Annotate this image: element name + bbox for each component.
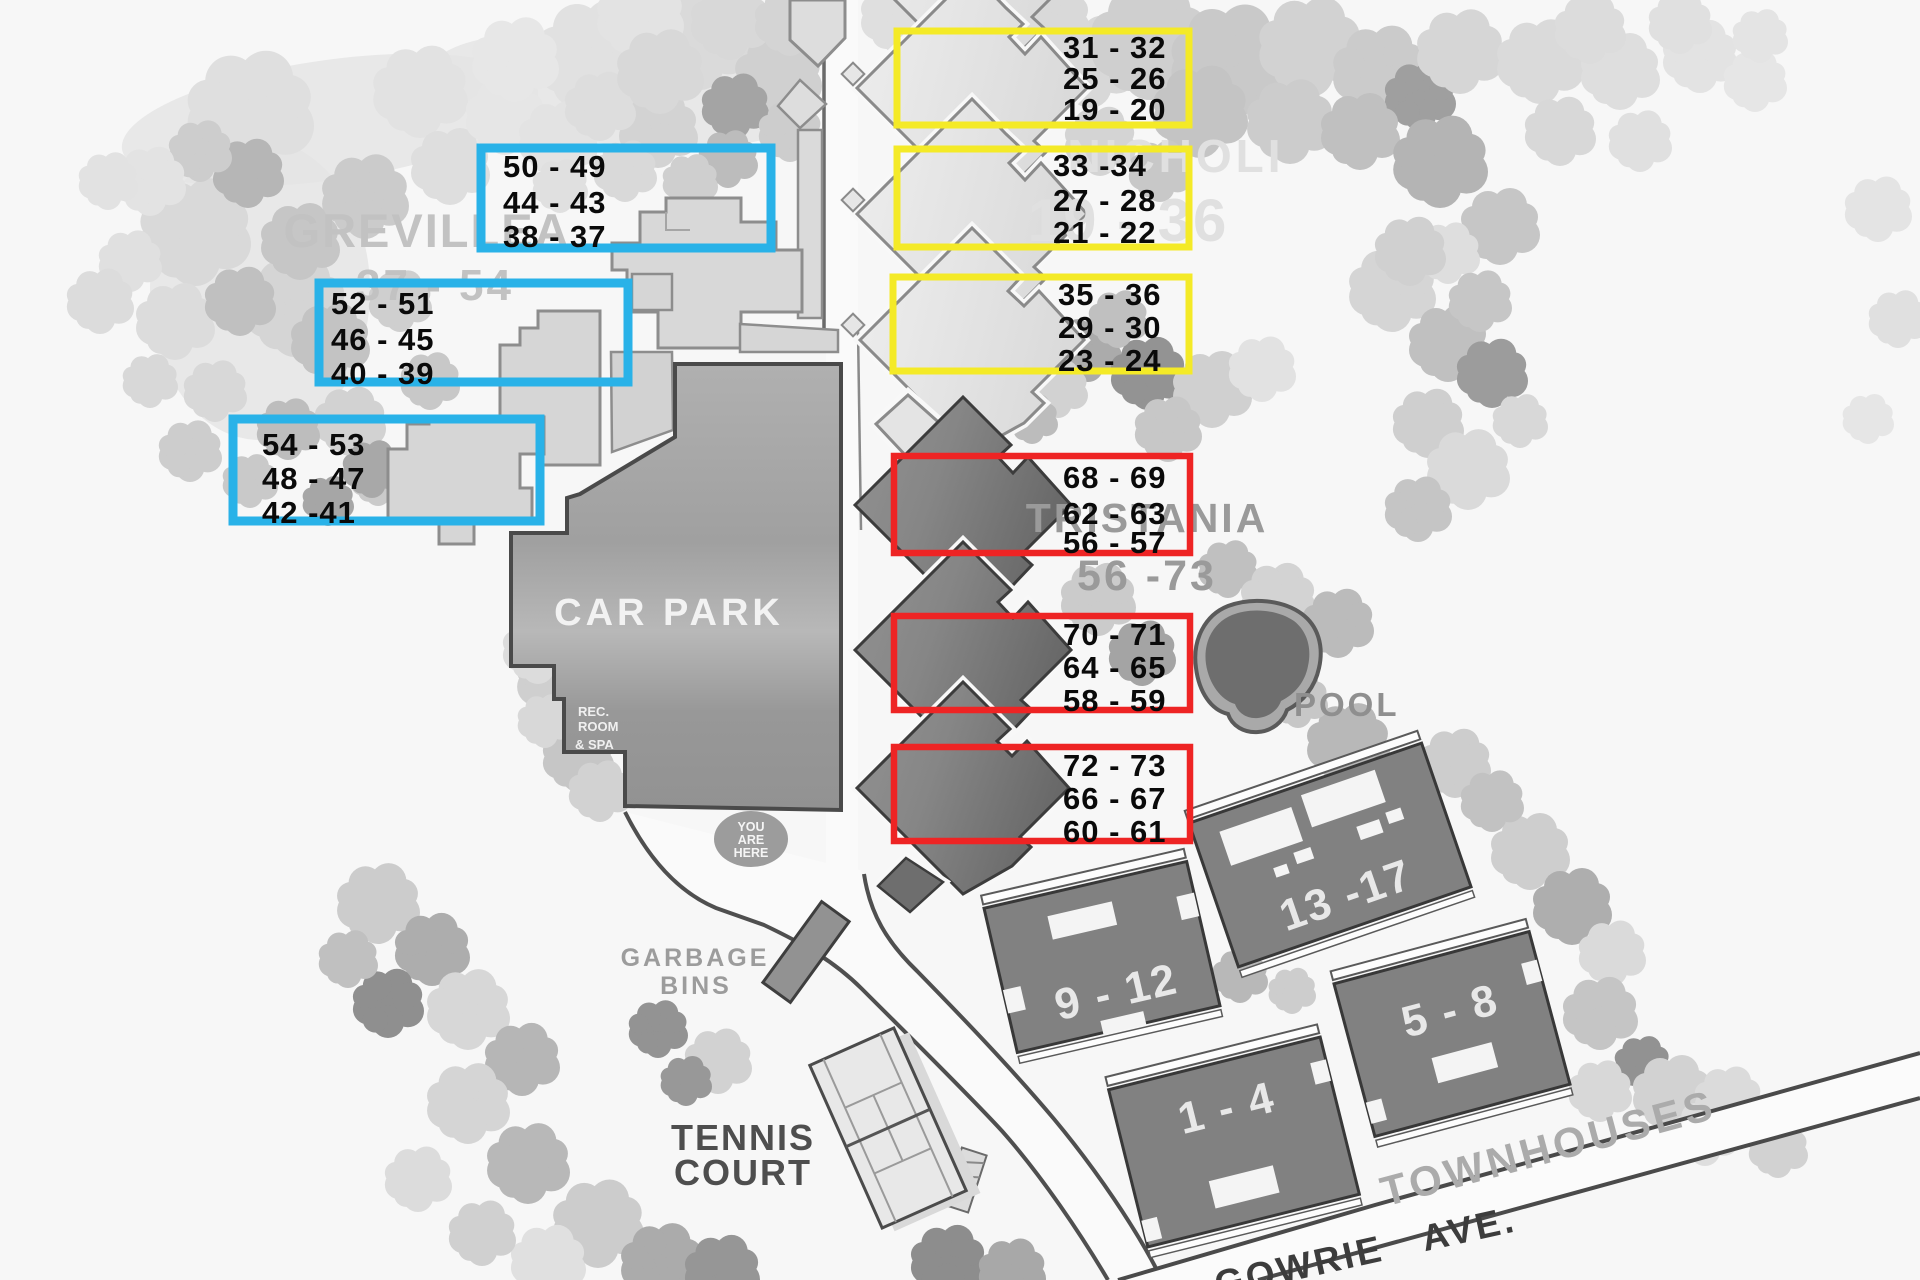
svg-text:POOL: POOL — [1294, 686, 1400, 723]
svg-text:& SPA: & SPA — [575, 737, 614, 752]
svg-text:29 - 30: 29 - 30 — [1058, 310, 1162, 345]
svg-text:54 - 53: 54 - 53 — [262, 427, 366, 462]
svg-text:31 - 32: 31 - 32 — [1063, 30, 1167, 65]
svg-text:COURT: COURT — [674, 1152, 812, 1193]
svg-text:52 - 51: 52 - 51 — [331, 286, 435, 321]
svg-text:42 -41: 42 -41 — [262, 495, 356, 530]
svg-text:58 - 59: 58 - 59 — [1063, 683, 1167, 718]
svg-text:21 - 22: 21 - 22 — [1053, 215, 1157, 250]
svg-text:68 - 69: 68 - 69 — [1063, 460, 1167, 495]
svg-text:40 - 39: 40 - 39 — [331, 356, 435, 391]
svg-text:70 - 71: 70 - 71 — [1063, 617, 1167, 652]
svg-text:60 - 61: 60 - 61 — [1063, 814, 1167, 849]
svg-text:35 - 36: 35 - 36 — [1058, 277, 1162, 312]
svg-text:19 - 20: 19 - 20 — [1063, 92, 1167, 127]
svg-text:HERE: HERE — [734, 846, 769, 860]
svg-text:25 - 26: 25 - 26 — [1063, 61, 1167, 96]
svg-text:REC.: REC. — [578, 704, 609, 719]
svg-text:64 - 65: 64 - 65 — [1063, 650, 1167, 685]
svg-text:56 - 57: 56 - 57 — [1063, 525, 1167, 560]
svg-text:BINS: BINS — [660, 972, 732, 1000]
svg-text:ROOM: ROOM — [578, 719, 618, 734]
svg-text:72 - 73: 72 - 73 — [1063, 748, 1167, 783]
svg-text:GARBAGE: GARBAGE — [621, 944, 770, 972]
svg-text:27 - 28: 27 - 28 — [1053, 183, 1157, 218]
svg-text:38 - 37: 38 - 37 — [503, 219, 607, 254]
svg-text:44 - 43: 44 - 43 — [503, 185, 607, 220]
svg-text:46 - 45: 46 - 45 — [331, 322, 435, 357]
svg-text:23 - 24: 23 - 24 — [1058, 343, 1162, 378]
svg-text:48 - 47: 48 - 47 — [262, 461, 366, 496]
svg-text:66 - 67: 66 - 67 — [1063, 781, 1167, 816]
svg-text:50 - 49: 50 - 49 — [503, 149, 607, 184]
svg-text:ARE: ARE — [738, 833, 764, 847]
svg-text:33 -34: 33 -34 — [1053, 148, 1147, 183]
svg-text:CAR PARK: CAR PARK — [554, 592, 784, 634]
svg-text:YOU: YOU — [737, 820, 764, 834]
